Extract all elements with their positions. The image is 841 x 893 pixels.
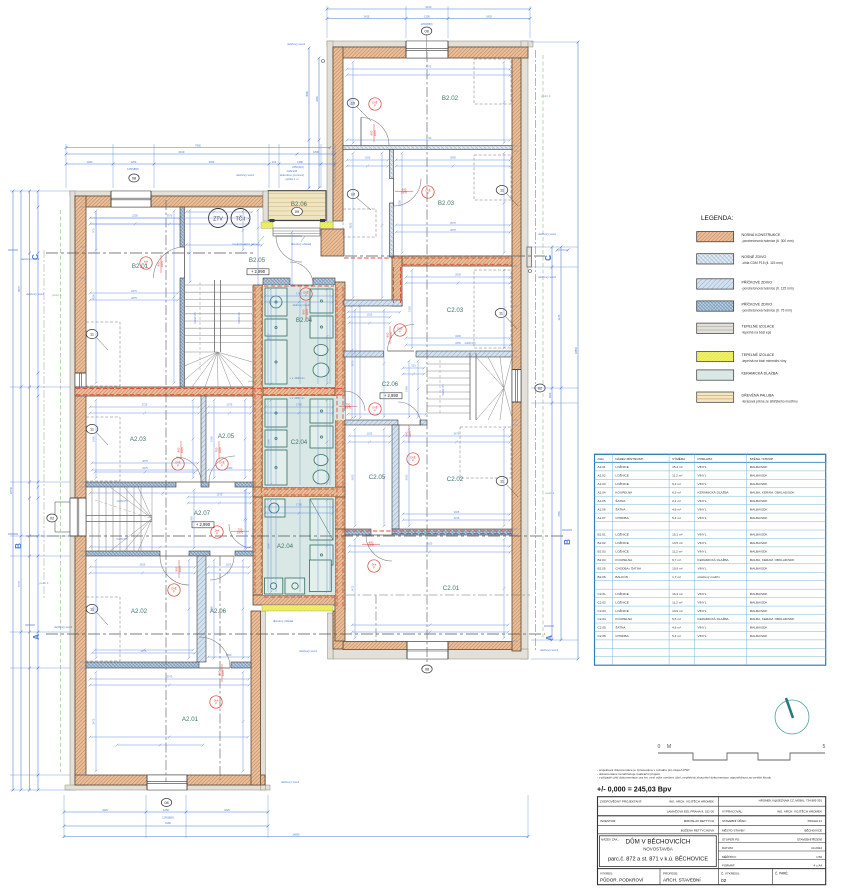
svg-text:MALBA, KERAM. OBKLAD/SDK: MALBA, KERAM. OBKLAD/SDK — [750, 558, 796, 562]
svg-text:Č. VÝKRESU:: Č. VÝKRESU: — [721, 871, 740, 876]
svg-text:-terasová prkna ze sibiřského: -terasová prkna ze sibiřského modřínu — [742, 400, 798, 404]
svg-text:525: 525 — [411, 364, 416, 368]
svg-text:3125: 3125 — [557, 314, 561, 320]
svg-text:VÝMĚRA: VÝMĚRA — [672, 456, 686, 461]
svg-text:5,4 m²: 5,4 m² — [672, 516, 681, 520]
svg-text:M: M — [667, 744, 671, 750]
svg-text:11,2 m²: 11,2 m² — [672, 474, 682, 478]
svg-text:výška 1 m: výška 1 m — [285, 177, 299, 181]
svg-text:2250: 2250 — [132, 214, 138, 218]
svg-text:MALBA, KERAM. OBKLAD/SDK: MALBA, KERAM. OBKLAD/SDK — [750, 490, 796, 494]
svg-text:VINYL: VINYL — [698, 600, 707, 604]
svg-text:v. s. 2400 mm: v. s. 2400 mm — [290, 397, 305, 400]
svg-text:B: B — [14, 543, 23, 549]
svg-text:1875: 1875 — [131, 289, 137, 293]
svg-text:A2.03: A2.03 — [130, 436, 147, 443]
svg-text:2475: 2475 — [351, 585, 355, 591]
svg-text:pozn.1: pozn.1 — [39, 581, 48, 585]
svg-text:TČ-I: TČ-I — [236, 216, 246, 223]
svg-text:02: 02 — [50, 516, 54, 520]
svg-text:6180: 6180 — [165, 821, 171, 825]
svg-text:číslo: číslo — [598, 457, 605, 461]
svg-text:A2.03: A2.03 — [598, 482, 606, 486]
svg-text:LOŽNICE: LOŽNICE — [615, 549, 628, 554]
svg-text:P: P — [145, 263, 147, 267]
svg-text:3400: 3400 — [455, 334, 461, 338]
svg-text:B: B — [563, 539, 572, 545]
svg-text:4025: 4025 — [427, 542, 433, 546]
svg-text:6,7 m²: 6,7 m² — [672, 558, 681, 562]
svg-text:LOŽNICE: LOŽNICE — [615, 591, 628, 596]
svg-text:CHODBA / ŠATNA: CHODBA / ŠATNA — [615, 566, 642, 571]
svg-text:ŠATNA: ŠATNA — [615, 498, 626, 503]
svg-text:4300: 4300 — [92, 294, 96, 300]
svg-text:1075: 1075 — [227, 403, 233, 407]
svg-text:08: 08 — [424, 29, 428, 33]
svg-text:LOŽNICE: LOŽNICE — [615, 540, 628, 545]
svg-text:MALBA/SDK: MALBA/SDK — [750, 609, 769, 613]
svg-text:3475: 3475 — [142, 466, 148, 470]
svg-text:VINYL: VINYL — [698, 634, 707, 638]
svg-text:975: 975 — [92, 228, 96, 233]
svg-text:KERAMICKÁ DLAŽBA: KERAMICKÁ DLAŽBA — [698, 616, 730, 621]
svg-text:02: 02 — [721, 878, 727, 884]
svg-text:11,2 m²: 11,2 m² — [672, 550, 682, 554]
svg-text:P: P — [216, 532, 218, 536]
svg-text:2875: 2875 — [131, 296, 137, 300]
svg-text:9,4 m²: 9,4 m² — [672, 482, 681, 486]
svg-text:VINYL: VINYL — [698, 550, 707, 554]
svg-text:11: 11 — [90, 427, 94, 431]
svg-text:6,5 m²: 6,5 m² — [672, 617, 681, 621]
svg-text:NOSNÁ KONSTRUKCE: NOSNÁ KONSTRUKCE — [742, 233, 781, 237]
svg-text:2425: 2425 — [405, 474, 409, 480]
svg-text:2675: 2675 — [454, 432, 460, 436]
svg-text:ARCH. STAVEBNÍ: ARCH. STAVEBNÍ — [663, 877, 701, 883]
svg-text:11: 11 — [499, 311, 503, 315]
svg-text:ZODPOVĚDNÝ PROJEKTANT:: ZODPOVĚDNÝ PROJEKTANT: — [600, 799, 642, 804]
svg-text:MALBA/SDK: MALBA/SDK — [750, 541, 769, 545]
svg-text:4150: 4150 — [426, 136, 432, 140]
svg-text:10.2022: 10.2022 — [811, 846, 822, 850]
svg-text:4,8 m²: 4,8 m² — [672, 626, 681, 630]
svg-text:2100: 2100 — [267, 439, 271, 445]
svg-text:parc.č. 872 a st. 871 v k.ú. B: parc.č. 872 a st. 871 v k.ú. BĚCHOVICE — [608, 855, 708, 863]
svg-text:P: P — [173, 590, 175, 594]
svg-text:ING. ARCH. VOJTĚCH HROMEK: ING. ARCH. VOJTĚCH HROMEK — [777, 809, 822, 814]
svg-text:3625: 3625 — [349, 222, 353, 228]
svg-text:15,1 m²: 15,1 m² — [672, 533, 683, 537]
svg-text:STAVEBNÍ ÚŘAD:: STAVEBNÍ ÚŘAD: — [722, 818, 747, 823]
svg-text:LOŽNICE: LOŽNICE — [615, 481, 628, 486]
svg-text:VINYL: VINYL — [698, 507, 707, 511]
svg-text:6100: 6100 — [179, 150, 185, 154]
svg-text:P: P — [412, 459, 414, 463]
svg-text:1250(860): 1250(860) — [127, 167, 139, 171]
svg-text:15,4 m²: 15,4 m² — [672, 465, 683, 469]
svg-text:1250(860): 1250(860) — [421, 22, 433, 26]
svg-text:dešťový svod: dešťový svod — [293, 303, 310, 307]
svg-text:VINYL: VINYL — [698, 499, 707, 503]
svg-text:A2.04: A2.04 — [277, 543, 294, 550]
svg-text:16,4 m²: 16,4 m² — [672, 592, 683, 596]
svg-text:MALBA/SDK: MALBA/SDK — [750, 533, 769, 537]
svg-text:14800: 14800 — [292, 833, 300, 837]
svg-text:2425: 2425 — [364, 15, 370, 19]
svg-text:MIROSLAV RETTYCH: MIROSLAV RETTYCH — [684, 819, 714, 823]
svg-text:1380: 1380 — [297, 160, 303, 164]
svg-text:dešťový svod: dešťový svod — [538, 275, 556, 279]
svg-text:1800: 1800 — [313, 150, 319, 154]
svg-text:1950: 1950 — [210, 436, 214, 442]
svg-text:5x280/175: 5x280/175 — [194, 312, 197, 324]
svg-text:PŘÍČKOVÉ ZDIVO: PŘÍČKOVÉ ZDIVO — [742, 301, 773, 306]
svg-text:2300: 2300 — [267, 543, 271, 549]
svg-text:A2.05: A2.05 — [218, 433, 235, 440]
svg-text:B2.06: B2.06 — [291, 201, 308, 208]
svg-text:STUPEŇ PD:: STUPEŇ PD: — [722, 837, 740, 842]
svg-text:ŠATNA: ŠATNA — [615, 625, 626, 630]
svg-text:VINYL: VINYL — [698, 465, 707, 469]
svg-text:4,8 m²: 4,8 m² — [672, 507, 681, 511]
svg-text:CHODBA: CHODBA — [615, 634, 629, 638]
svg-text:VINYL: VINYL — [698, 567, 707, 571]
svg-text:-tepelná na bázi eps: -tepelná na bázi eps — [742, 331, 772, 335]
svg-text:dešťový svod: dešťový svod — [236, 173, 254, 177]
svg-text:MĚŘÍTKO:: MĚŘÍTKO: — [722, 854, 737, 859]
svg-text:pozn.1: pozn.1 — [541, 94, 550, 98]
svg-text:STĚNA / STROP: STĚNA / STROP — [750, 456, 773, 461]
svg-text:18850: 18850 — [574, 346, 578, 354]
svg-text:- v případě užití dokumentace: - v případě užití dokumentace ora inv. n… — [597, 776, 771, 780]
svg-text:1250(860): 1250(860) — [162, 816, 174, 820]
svg-text:2025: 2025 — [349, 99, 353, 105]
svg-text:A2.02: A2.02 — [131, 608, 148, 615]
svg-text:MALBA/SDK: MALBA/SDK — [750, 499, 769, 503]
svg-text:dešťový svod: dešťový svod — [299, 649, 317, 653]
svg-text:P: P — [427, 192, 429, 196]
svg-text:BOŽENA RETTYCHOVA: BOŽENA RETTYCHOVA — [681, 827, 714, 832]
svg-text:1950: 1950 — [408, 306, 412, 312]
svg-text:MALBA/SDK: MALBA/SDK — [750, 516, 769, 520]
svg-text:LOŽNICE: LOŽNICE — [615, 599, 628, 604]
svg-text:Č. PARÉ:: Č. PARÉ: — [775, 871, 789, 876]
svg-text:3975: 3975 — [167, 675, 173, 679]
svg-text:-porobetonová tvárnice (tl. 75: -porobetonová tvárnice (tl. 75 mm) — [742, 308, 792, 312]
svg-text:VYPRACOVAL:: VYPRACOVAL: — [722, 810, 743, 814]
svg-text:+ 2,990: + 2,990 — [251, 269, 266, 274]
svg-text:LOŽNICE: LOŽNICE — [615, 473, 628, 478]
svg-text:dřevěný obklad: dřevěný obklad — [291, 242, 312, 246]
svg-text:VINYL: VINYL — [698, 541, 707, 545]
svg-text:HROMEK.V@SEZNAM.CZ, MOBIL: 734: HROMEK.V@SEZNAM.CZ, MOBIL: 734 889 391 — [759, 799, 823, 803]
svg-text:3455: 3455 — [455, 341, 461, 345]
svg-text:C2.06: C2.06 — [382, 381, 399, 388]
svg-text:A2.07: A2.07 — [194, 510, 211, 517]
svg-text:MALBA/SDK: MALBA/SDK — [750, 482, 769, 486]
svg-text:MALBA/SDK: MALBA/SDK — [750, 626, 769, 630]
svg-text:B2.03: B2.03 — [438, 200, 455, 207]
svg-text:11: 11 — [500, 188, 504, 192]
svg-text:pozn.1: pozn.1 — [248, 379, 257, 383]
svg-text:5x280/175: 5x280/175 — [116, 538, 128, 541]
svg-text:P: P — [221, 464, 223, 468]
svg-text:PŮDOR. PODKROVÍ: PŮDOR. PODKROVÍ — [600, 877, 644, 883]
svg-text:3425: 3425 — [102, 808, 108, 812]
svg-text:1480: 1480 — [227, 466, 233, 470]
svg-text:11: 11 — [500, 479, 504, 483]
svg-text:MALBA/SDK: MALBA/SDK — [750, 634, 769, 638]
svg-text:1400: 1400 — [405, 386, 409, 392]
svg-text:VINYL: VINYL — [698, 626, 707, 630]
svg-text:v. s. 2400 mm: v. s. 2400 mm — [290, 377, 305, 380]
svg-text:PŘÍČKOVÉ ZDIVO: PŘÍČKOVÉ ZDIVO — [742, 279, 773, 284]
svg-text:11: 11 — [90, 332, 94, 336]
svg-text:0: 0 — [658, 744, 661, 750]
svg-text:MĚSTO STAVBY:: MĚSTO STAVBY: — [722, 827, 746, 832]
svg-text:NÁZEV ZAK.:: NÁZEV ZAK.: — [601, 838, 620, 842]
svg-text:dřevěný obklad: dřevěný obklad — [273, 619, 294, 623]
svg-text:VINYL: VINYL — [698, 474, 707, 478]
svg-text:C2.04: C2.04 — [598, 617, 607, 621]
svg-text:1025: 1025 — [367, 313, 373, 317]
svg-text:3025: 3025 — [454, 510, 460, 514]
svg-text:C2.01: C2.01 — [443, 585, 460, 592]
svg-text:5675: 5675 — [17, 286, 21, 292]
svg-text:2600: 2600 — [455, 273, 461, 277]
svg-text:TEPELNÉ IZOLACE: TEPELNÉ IZOLACE — [742, 324, 775, 329]
svg-text:5x280/175: 5x280/175 — [442, 384, 445, 396]
svg-text:A2.01: A2.01 — [182, 716, 199, 723]
svg-text:VINYL: VINYL — [698, 592, 707, 596]
svg-text:NOVOSTAVBA: NOVOSTAVBA — [643, 847, 673, 852]
svg-text:KERAMICKÁ DLAŽBA: KERAMICKÁ DLAŽBA — [742, 370, 779, 375]
svg-text:DATUM:: DATUM: — [722, 846, 733, 850]
svg-text:4x280/175: 4x280/175 — [464, 342, 476, 345]
svg-text:MALBA/SDK: MALBA/SDK — [750, 600, 769, 604]
svg-text:C2.06: C2.06 — [598, 634, 607, 638]
svg-text:1450: 1450 — [190, 516, 194, 522]
svg-text:+ 2,990: + 2,990 — [384, 393, 399, 398]
svg-text:7850: 7850 — [557, 511, 561, 517]
svg-text:-cihla CDM P15 (tl. 115 mm): -cihla CDM P15 (tl. 115 mm) — [742, 261, 783, 265]
svg-text:NOSNÉ ZDIVO: NOSNÉ ZDIVO — [742, 254, 767, 259]
svg-text:-tepelná na bázi minerální vln: -tepelná na bázi minerální vlny — [742, 359, 787, 363]
svg-text:KERAMICKÁ DLAŽBA: KERAMICKÁ DLAŽBA — [698, 489, 730, 494]
svg-text:LOŽNICE: LOŽNICE — [615, 608, 628, 613]
svg-text:2375: 2375 — [267, 333, 271, 339]
svg-text:BĚCHOVICE: BĚCHOVICE — [804, 827, 822, 832]
svg-text:B2.05: B2.05 — [249, 257, 266, 264]
svg-text:NÁZEV MÍSTNOSTI: NÁZEV MÍSTNOSTI — [615, 457, 643, 461]
svg-text:4075: 4075 — [426, 65, 432, 69]
svg-text:1025: 1025 — [367, 432, 373, 436]
svg-text:MALBA/SDK: MALBA/SDK — [750, 592, 769, 596]
svg-text:C2.03: C2.03 — [447, 307, 464, 314]
svg-text:08: 08 — [132, 176, 136, 180]
svg-text:ošetřený modřín: ošetřený modřín — [698, 575, 721, 579]
svg-text:5: 5 — [823, 744, 826, 750]
svg-text:ZTV: ZTV — [213, 217, 223, 223]
svg-text:11,2 m²: 11,2 m² — [672, 600, 682, 604]
svg-text:P: P — [374, 409, 376, 413]
svg-text:6,5 m²: 6,5 m² — [672, 490, 681, 494]
svg-text:INVESTOR:: INVESTOR: — [600, 819, 616, 823]
svg-text:09: 09 — [295, 210, 299, 214]
svg-text:1250: 1250 — [163, 808, 169, 812]
svg-text:2425: 2425 — [486, 15, 492, 19]
svg-text:2575: 2575 — [450, 221, 456, 225]
svg-text:3415: 3415 — [454, 516, 460, 520]
svg-text:-porobetonová tvárnice (tl. 30: -porobetonová tvárnice (tl. 300 mm) — [742, 239, 794, 243]
svg-text:B2.02: B2.02 — [598, 541, 606, 545]
svg-text:P: P — [374, 104, 376, 108]
svg-text:3425: 3425 — [224, 808, 230, 812]
svg-text:DŮM V BĚCHOVICÍCH: DŮM V BĚCHOVICÍCH — [626, 838, 691, 846]
svg-text:A2.02: A2.02 — [598, 474, 606, 478]
svg-text:4x280/175: 4x280/175 — [116, 500, 128, 503]
svg-text:3975: 3975 — [167, 214, 173, 218]
svg-text:KOUPELNA: KOUPELNA — [615, 617, 633, 621]
svg-text:1025: 1025 — [226, 563, 232, 567]
svg-text:2500: 2500 — [398, 200, 402, 206]
svg-text:1950: 1950 — [92, 436, 96, 442]
svg-text:1:50: 1:50 — [816, 855, 822, 859]
svg-text:B2.03: B2.03 — [598, 550, 606, 554]
svg-text:pozn.1: pozn.1 — [52, 293, 61, 297]
svg-text:2675: 2675 — [351, 360, 355, 366]
svg-text:VINYL: VINYL — [698, 533, 707, 537]
svg-text:3675: 3675 — [142, 459, 148, 463]
svg-text:1025: 1025 — [365, 156, 371, 160]
svg-text:6100: 6100 — [426, 5, 432, 9]
svg-text:MALBA/SDK: MALBA/SDK — [750, 507, 769, 511]
svg-text:7900: 7900 — [195, 144, 201, 148]
svg-text:PRAHA 21: PRAHA 21 — [808, 819, 823, 823]
svg-text:CHODBA: CHODBA — [615, 516, 629, 520]
svg-text:ŠATNA: ŠATNA — [615, 506, 626, 511]
svg-text:B2.04: B2.04 — [296, 317, 313, 324]
svg-text:dešťový svod: dešťový svod — [540, 648, 558, 652]
svg-text:1700: 1700 — [296, 503, 302, 507]
svg-text:VINYL: VINYL — [698, 516, 707, 520]
svg-text:LOŽNICE: LOŽNICE — [615, 532, 628, 537]
svg-text:A: A — [32, 634, 41, 640]
svg-text:C2.05: C2.05 — [598, 626, 607, 630]
svg-text:ING. ARCH. VOJTĚCH HROMEK: ING. ARCH. VOJTĚCH HROMEK — [669, 799, 714, 804]
svg-text:B2.04: B2.04 — [598, 558, 606, 562]
svg-text:A2.05: A2.05 — [598, 499, 606, 503]
svg-text:MALBA/SDK: MALBA/SDK — [750, 474, 769, 478]
svg-text:18750: 18750 — [9, 486, 13, 494]
svg-text:dešťový svod: dešťový svod — [26, 292, 44, 296]
svg-text:1250: 1250 — [424, 15, 430, 19]
svg-text:2475: 2475 — [92, 718, 96, 724]
svg-text:P: P — [373, 566, 375, 570]
svg-text:STAVEBNÍ ŘÍZENÍ: STAVEBNÍ ŘÍZENÍ — [797, 837, 822, 842]
svg-text:5775: 5775 — [17, 581, 21, 587]
svg-text:02: 02 — [538, 386, 542, 390]
svg-text:TEPELNÉ IZOLACE: TEPELNÉ IZOLACE — [742, 352, 775, 357]
svg-text:08: 08 — [164, 801, 168, 805]
svg-text:2450: 2450 — [92, 606, 96, 612]
svg-text:dešťový svod: dešťový svod — [21, 257, 39, 261]
svg-text:dešťový svod: dešťový svod — [281, 780, 299, 784]
svg-text:P: P — [215, 702, 217, 706]
svg-text:2725: 2725 — [142, 403, 148, 407]
svg-text:1400: 1400 — [87, 160, 93, 164]
svg-text:+ 2,990: + 2,990 — [196, 522, 211, 527]
svg-text:A2.04: A2.04 — [598, 490, 606, 494]
svg-text:2850: 2850 — [450, 156, 456, 160]
svg-text:2425: 2425 — [351, 474, 355, 480]
svg-text:B2.06: B2.06 — [598, 575, 606, 579]
svg-text:2,1 m²: 2,1 m² — [672, 499, 681, 503]
svg-text:1700: 1700 — [296, 403, 302, 407]
svg-text:2450: 2450 — [210, 606, 214, 612]
svg-text:C2.05: C2.05 — [369, 474, 386, 481]
svg-text:FORMÁT:: FORMÁT: — [722, 863, 735, 867]
svg-text:MALBA/SDK: MALBA/SDK — [750, 567, 769, 571]
svg-text:-porobetonová tvárnice (tl. 12: -porobetonová tvárnice (tl. 125 mm) — [742, 286, 794, 290]
svg-text:1,7 m²: 1,7 m² — [672, 575, 681, 579]
svg-text:C2.03: C2.03 — [598, 609, 607, 613]
svg-text:VINYL: VINYL — [698, 482, 707, 486]
svg-text:dešťový svod: dešťový svod — [54, 625, 72, 629]
svg-text:3450: 3450 — [315, 96, 319, 102]
svg-text:1500: 1500 — [226, 653, 232, 657]
svg-text:C2.04: C2.04 — [291, 439, 308, 446]
svg-text:KERAMICKÁ DLAŽBA: KERAMICKÁ DLAŽBA — [698, 557, 730, 562]
svg-text:BALKON: BALKON — [615, 575, 628, 579]
svg-text:210: 210 — [272, 160, 277, 164]
svg-text:pozn.1: pozn.1 — [545, 491, 554, 495]
svg-text:KOUPELNA: KOUPELNA — [615, 490, 633, 494]
svg-text:zvukoizolační panely: zvukoizolační panely — [232, 242, 260, 246]
svg-text:5x280/175: 5x280/175 — [238, 312, 241, 324]
svg-text:P: P — [399, 330, 401, 334]
svg-text:C2.02: C2.02 — [447, 476, 464, 483]
svg-text:3575: 3575 — [450, 228, 456, 232]
svg-text:LOŽNICE: LOŽNICE — [615, 464, 628, 469]
svg-text:4 x A4: 4 x A4 — [814, 863, 823, 867]
svg-text:MALBA/SDK: MALBA/SDK — [750, 465, 769, 469]
svg-text:B2.05: B2.05 — [598, 567, 606, 571]
svg-text:DŘEVĚNÁ PALUBA: DŘEVĚNÁ PALUBA — [742, 393, 775, 398]
svg-text:C2.02: C2.02 — [598, 600, 607, 604]
svg-text:3450: 3450 — [209, 160, 215, 164]
svg-text:1250: 1250 — [131, 160, 137, 164]
svg-text:LAMAČOVA 825, PRAHA 8, 152 00: LAMAČOVA 825, PRAHA 8, 152 00 — [667, 809, 715, 814]
svg-text:A2.01: A2.01 — [598, 465, 606, 469]
svg-text:4580: 4580 — [305, 91, 309, 97]
svg-text:13,5 m²: 13,5 m² — [672, 541, 683, 545]
svg-text:B2.02: B2.02 — [442, 95, 459, 102]
svg-text:LEGENDA:: LEGENDA: — [701, 215, 734, 222]
svg-text:10,9 m²: 10,9 m² — [672, 609, 683, 613]
svg-text:MALBA/SDK: MALBA/SDK — [750, 550, 769, 554]
svg-text:P: P — [305, 294, 307, 298]
svg-text:PROFESE:: PROFESE: — [663, 872, 678, 876]
svg-text:MALBA, KERAM. OBKLAD/SDK: MALBA, KERAM. OBKLAD/SDK — [750, 617, 796, 621]
svg-text:+/- 0,000 = 245,03 Bpv: +/- 0,000 = 245,03 Bpv — [597, 785, 671, 794]
svg-text:dešťový svod: dešťový svod — [538, 232, 556, 236]
svg-text:VÝKRES:: VÝKRES: — [600, 872, 613, 876]
svg-text:1700: 1700 — [296, 292, 302, 296]
svg-text:dešťový svod: dešťový svod — [287, 42, 305, 46]
svg-text:PODLAHA: PODLAHA — [698, 457, 714, 461]
svg-text:KOUPELNA: KOUPELNA — [615, 558, 633, 562]
